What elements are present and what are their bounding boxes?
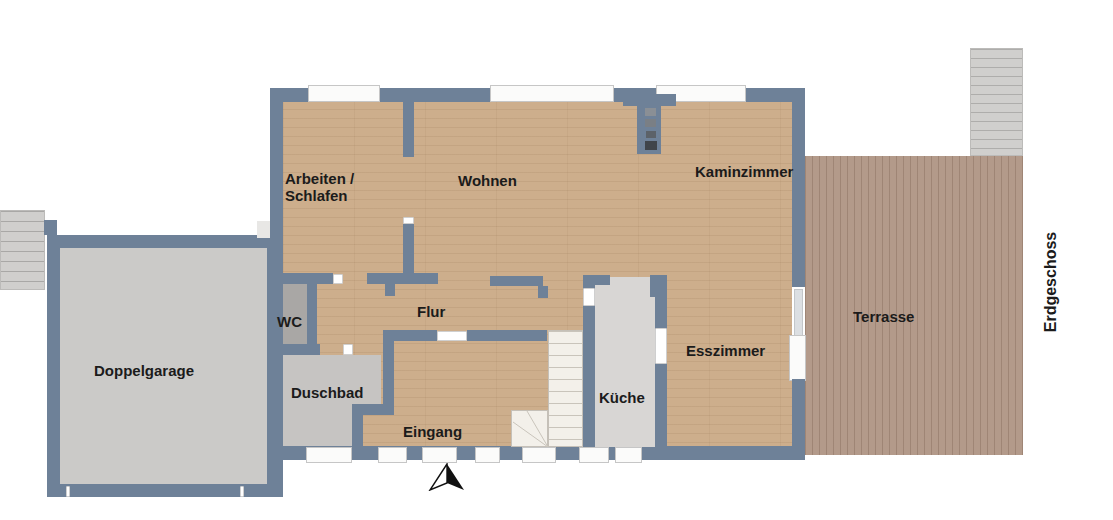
wall xyxy=(467,330,547,341)
wall xyxy=(385,284,395,296)
floor-plan-erdgeschoss: Arbeiten /Schlafen Wohnen Kaminzimmer WC… xyxy=(0,0,1113,520)
window xyxy=(378,447,407,463)
door-opening xyxy=(655,328,667,364)
wall xyxy=(352,404,363,446)
side-landing xyxy=(257,221,270,238)
glass-front xyxy=(794,289,803,337)
garage-wall-bottom xyxy=(47,484,280,497)
wc-wall xyxy=(307,284,317,345)
wall xyxy=(403,224,414,275)
room-label-arbeiten-schlafen: Arbeiten /Schlafen xyxy=(285,170,354,204)
room-label-line: Arbeiten / xyxy=(285,170,354,187)
room-label-wc: WC xyxy=(277,313,302,330)
north-arrow-icon xyxy=(428,463,466,491)
room-label-doppelgarage: Doppelgarage xyxy=(94,362,194,379)
wall xyxy=(538,286,548,298)
wall xyxy=(367,273,438,284)
window xyxy=(475,447,500,463)
floor-title: Erdgeschoss xyxy=(1042,217,1062,347)
house-wall-left xyxy=(270,88,283,460)
room-label-terrasse: Terrasse xyxy=(853,308,914,325)
staircase-run xyxy=(548,330,583,447)
door-opening xyxy=(437,331,467,341)
garage-wall-top xyxy=(47,235,280,248)
wall xyxy=(44,220,57,235)
window xyxy=(579,447,609,463)
room-label-kueche: Küche xyxy=(599,389,645,406)
kueche-floor xyxy=(595,285,655,447)
room-label-eingang: Eingang xyxy=(403,423,462,440)
window xyxy=(306,447,352,463)
terrace-door xyxy=(789,335,806,381)
garage-door-mark xyxy=(240,486,244,497)
staircase-winder-lines xyxy=(511,410,548,447)
window xyxy=(522,447,556,463)
wall xyxy=(583,275,610,285)
chimney-flue xyxy=(645,119,656,127)
door-cap xyxy=(333,274,343,284)
duschbad-floor xyxy=(283,404,352,446)
terrace-steps xyxy=(970,48,1023,156)
room-label-wohnen: Wohnen xyxy=(458,172,517,189)
garage-wall-left xyxy=(47,235,60,497)
chimney-flue xyxy=(645,108,656,116)
room-label-duschbad: Duschbad xyxy=(291,384,364,401)
wall xyxy=(283,273,333,284)
wall xyxy=(283,344,320,355)
terrasse-deck xyxy=(805,156,1023,455)
chimney-flue xyxy=(646,131,656,138)
room-label-flur: Flur xyxy=(417,303,445,320)
wall xyxy=(403,100,414,157)
room-label-esszimmer: Esszimmer xyxy=(686,342,765,359)
window xyxy=(490,85,614,102)
entrance-door xyxy=(422,447,457,463)
room-label-line: Schlafen xyxy=(285,187,348,204)
wall xyxy=(394,330,437,341)
door-cap xyxy=(343,344,353,355)
wall xyxy=(650,275,667,297)
kueche-floor xyxy=(610,277,650,287)
window xyxy=(308,85,380,102)
garage-door-mark xyxy=(66,486,70,497)
chimney-flue xyxy=(645,141,657,150)
window xyxy=(615,447,642,463)
door-opening xyxy=(583,288,595,306)
chimney xyxy=(623,94,676,106)
wall xyxy=(383,330,394,404)
door-cap xyxy=(403,217,414,224)
exterior-steps-left xyxy=(0,210,45,290)
room-label-kaminzimmer: Kaminzimmer xyxy=(695,163,793,180)
house-wall-right-upper xyxy=(792,88,805,287)
wall xyxy=(490,276,543,286)
